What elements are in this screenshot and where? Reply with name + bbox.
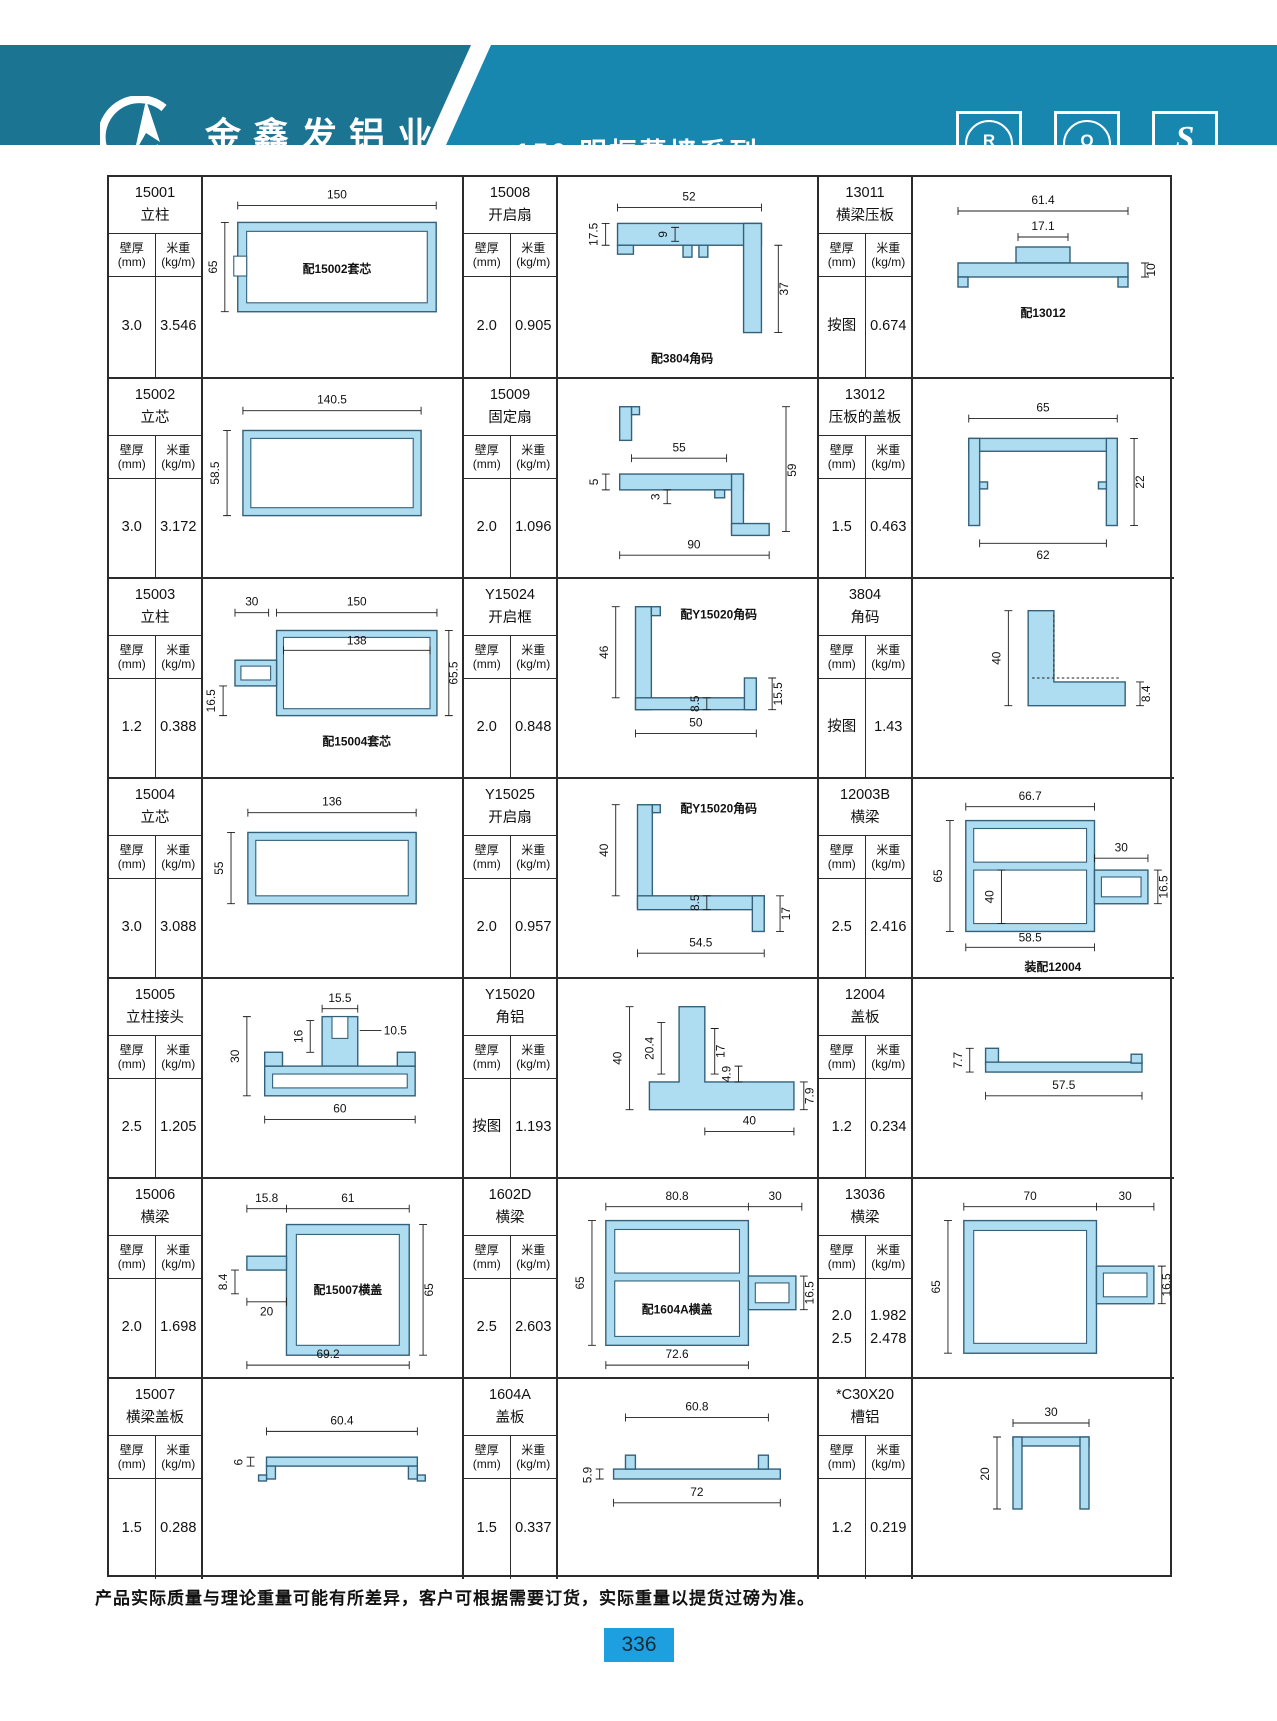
dim-label: 17	[714, 1045, 728, 1058]
dim-label: 4.9	[720, 1065, 734, 1082]
thickness-header: 壁厚 (mm)	[109, 1236, 156, 1278]
dim-label: 40	[743, 1114, 757, 1128]
weight-header: 米重 (kg/m)	[511, 1036, 557, 1078]
weight-header: 米重 (kg/m)	[866, 1036, 912, 1078]
dim-label: 90	[687, 537, 701, 551]
profile-drawing: 15.8 61 配15007横盖 65 8.4 20 69.2	[203, 1179, 462, 1377]
dim-label: 150	[327, 188, 347, 202]
dim-label: 20.4	[642, 1036, 656, 1060]
weight-value: 0.288	[156, 1479, 202, 1579]
dim-label: 30	[1119, 1189, 1133, 1203]
cqm-r-badge: R CQM	[956, 111, 1022, 177]
profile-name: 横梁	[496, 1206, 525, 1227]
dim-label: 65	[931, 869, 945, 883]
dim-label: 62	[1036, 548, 1049, 562]
weight-value: 0.234	[866, 1079, 912, 1177]
profile-cell-3804: 3804 角码 壁厚 (mm) 米重 (kg/m) 按图 1.43 40 8.4	[819, 579, 1174, 779]
spec-values: 1.2 0.219	[819, 1479, 911, 1579]
profile-code: Y15025	[485, 787, 535, 803]
dim-label: 15.5	[328, 991, 352, 1005]
profile-note: 配1604A横盖	[642, 1303, 713, 1317]
profile-code: 15004	[135, 787, 175, 803]
spec-header: 壁厚 (mm) 米重 (kg/m)	[819, 436, 911, 479]
dim-label: 9	[656, 231, 670, 238]
profile-drawing: 配Y15020角码 46 8.5 15.5 50	[558, 579, 817, 777]
spec-header: 壁厚 (mm) 米重 (kg/m)	[464, 234, 556, 277]
dim-label: 66.7	[1019, 789, 1042, 803]
dim-label: 58.5	[208, 461, 222, 485]
spec-header: 壁厚 (mm) 米重 (kg/m)	[109, 1036, 201, 1079]
profile-drawing: 60.8 5.9 72	[558, 1379, 817, 1579]
thickness-value: 2.0 2.5	[819, 1279, 866, 1377]
dim-label: 37	[777, 282, 791, 296]
dim-label: 72	[690, 1485, 704, 1499]
profile-cell-y15024: Y15024 开启框 壁厚 (mm) 米重 (kg/m) 2.0 0.848 配…	[464, 579, 819, 779]
weight-header: 米重 (kg/m)	[866, 1436, 912, 1478]
profile-cell-15002: 15002 立芯 壁厚 (mm) 米重 (kg/m) 3.0 3.172 140…	[109, 379, 464, 579]
weight-header: 米重 (kg/m)	[511, 1236, 557, 1278]
profile-cell-y15025: Y15025 开启扇 壁厚 (mm) 米重 (kg/m) 2.0 0.957 配…	[464, 779, 819, 979]
dim-label: 7.9	[803, 1087, 817, 1104]
weight-header: 米重 (kg/m)	[866, 1236, 912, 1278]
dim-label: 17.5	[587, 222, 601, 246]
profile-info: 13011 横梁压板 壁厚 (mm) 米重 (kg/m) 按图 0.674	[819, 177, 913, 377]
dim-label: 17.1	[1031, 219, 1055, 233]
profile-code: 15001	[135, 185, 175, 201]
weight-header: 米重 (kg/m)	[156, 636, 202, 678]
dim-label: 59	[785, 463, 799, 477]
thickness-value: 2.0	[464, 679, 511, 777]
spec-values: 1.2 0.388	[109, 679, 201, 777]
thickness-value: 3.0	[109, 277, 156, 377]
profile-name: 立柱接头	[126, 1006, 184, 1027]
profile-info: 15009 固定扇 壁厚 (mm) 米重 (kg/m) 2.0 1.096	[464, 379, 558, 577]
dim-label: 138	[347, 633, 367, 647]
profile-drawing: 52 17.5 9 37 配3804角码	[558, 177, 817, 377]
dim-label: 5.9	[581, 1466, 595, 1483]
weight-value: 0.674	[866, 277, 912, 377]
weight-header: 米重 (kg/m)	[866, 436, 912, 478]
profile-info: 15005 立柱接头 壁厚 (mm) 米重 (kg/m) 2.5 1.205	[109, 979, 203, 1177]
dim-label: 8.4	[216, 1273, 230, 1290]
profile-name: 固定扇	[488, 406, 532, 427]
weight-header: 米重 (kg/m)	[511, 436, 557, 478]
spec-header: 壁厚 (mm) 米重 (kg/m)	[819, 636, 911, 679]
profile-code: 13012	[845, 387, 885, 403]
thickness-header: 壁厚 (mm)	[464, 1036, 511, 1078]
spec-values: 3.0 3.172	[109, 479, 201, 577]
cqm-r-badge-icon: R CQM	[965, 120, 1013, 168]
thickness-value: 1.5	[819, 479, 866, 577]
weight-value: 3.172	[156, 479, 202, 577]
weight-header: 米重 (kg/m)	[156, 836, 202, 878]
thickness-value: 1.5	[109, 1479, 156, 1579]
weight-header: 米重 (kg/m)	[866, 836, 912, 878]
profile-info: *C30X20 槽铝 壁厚 (mm) 米重 (kg/m) 1.2 0.219	[819, 1379, 913, 1579]
profile-cell-15007: 15007 横梁盖板 壁厚 (mm) 米重 (kg/m) 1.5 0.288 6…	[109, 1379, 464, 1579]
dim-label: 30	[245, 595, 259, 609]
dim-label: 57.5	[1052, 1078, 1076, 1092]
profile-code: 15005	[135, 987, 175, 1003]
thickness-header: 壁厚 (mm)	[819, 436, 866, 478]
profile-id: 3804 角码	[819, 579, 911, 636]
profile-cell-c30x20: *C30X20 槽铝 壁厚 (mm) 米重 (kg/m) 1.2 0.219 3…	[819, 1379, 1174, 1579]
thickness-value: 2.0	[464, 879, 511, 977]
dim-label: 10	[1144, 263, 1158, 277]
profile-info: Y15025 开启扇 壁厚 (mm) 米重 (kg/m) 2.0 0.957	[464, 779, 558, 977]
dim-label: 150	[347, 595, 367, 609]
dim-label: 30	[769, 1189, 783, 1203]
spec-values: 2.0 1.698	[109, 1279, 201, 1377]
spec-header: 壁厚 (mm) 米重 (kg/m)	[464, 436, 556, 479]
thickness-value: 按图	[819, 277, 866, 377]
profile-info: 15001 立柱 壁厚 (mm) 米重 (kg/m) 3.0 3.546	[109, 177, 203, 377]
spec-values: 2.0 0.905	[464, 277, 556, 377]
page-number: 336	[604, 1628, 674, 1662]
dim-label: 60	[333, 1102, 347, 1116]
profile-drawing: 70 30 65 16.5	[913, 1179, 1174, 1377]
profile-info: Y15020 角铝 壁厚 (mm) 米重 (kg/m) 按图 1.193	[464, 979, 558, 1177]
thickness-header: 壁厚 (mm)	[109, 436, 156, 478]
dim-label: 52	[682, 190, 696, 204]
profile-cell-15003: 15003 立柱 壁厚 (mm) 米重 (kg/m) 1.2 0.388 30 …	[109, 579, 464, 779]
profile-drawing: 80.8 30 配1604A横盖 65 16.5 72.6	[558, 1179, 817, 1377]
dim-label: 136	[322, 795, 342, 809]
profile-code: 15009	[490, 387, 530, 403]
profile-id: 15009 固定扇	[464, 379, 556, 436]
spec-values: 3.0 3.088	[109, 879, 201, 977]
thickness-header: 壁厚 (mm)	[109, 234, 156, 276]
spec-values: 3.0 3.546	[109, 277, 201, 377]
profile-info: 15006 横梁 壁厚 (mm) 米重 (kg/m) 2.0 1.698	[109, 1179, 203, 1377]
spec-values: 1.5 0.288	[109, 1479, 201, 1579]
profile-name: 横梁压板	[836, 204, 894, 225]
profile-name: 立芯	[141, 406, 170, 427]
weight-header: 米重 (kg/m)	[156, 234, 202, 276]
profile-code: 15002	[135, 387, 175, 403]
spec-header: 壁厚 (mm) 米重 (kg/m)	[464, 1036, 556, 1079]
dim-label: 61.4	[1031, 193, 1055, 207]
weight-value: 0.337	[511, 1479, 557, 1579]
dim-label: 15.8	[255, 1191, 279, 1205]
weight-header: 米重 (kg/m)	[866, 234, 912, 276]
spec-header: 壁厚 (mm) 米重 (kg/m)	[109, 836, 201, 879]
profile-drawing: 136 55	[203, 779, 462, 977]
profile-note: 配Y15020角码	[680, 802, 757, 816]
profile-cell-13012: 13012 压板的盖板 壁厚 (mm) 米重 (kg/m) 1.5 0.463 …	[819, 379, 1174, 579]
spec-values: 按图 1.193	[464, 1079, 556, 1177]
thickness-header: 壁厚 (mm)	[464, 234, 511, 276]
profile-id: Y15020 角铝	[464, 979, 556, 1036]
profile-name: 横梁	[141, 1206, 170, 1227]
spec-header: 壁厚 (mm) 米重 (kg/m)	[819, 234, 911, 277]
profile-code: 3804	[849, 587, 881, 603]
spec-header: 壁厚 (mm) 米重 (kg/m)	[464, 1436, 556, 1479]
profile-drawing: 15.5 16 10.5 30 60	[203, 979, 462, 1177]
profile-drawing: 61.4 17.1 10 配13012	[913, 177, 1174, 377]
profile-id: 15005 立柱接头	[109, 979, 201, 1036]
profile-note: 配15007横盖	[314, 1283, 383, 1297]
profile-id: 1604A 盖板	[464, 1379, 556, 1436]
dim-label: 8.4	[1139, 685, 1153, 702]
cqm-q-badge: Q CQM	[1054, 111, 1120, 177]
badge-caption: 生产许可	[1168, 158, 1202, 169]
weight-header: 米重 (kg/m)	[866, 636, 912, 678]
profile-drawing: 65 62 22	[913, 379, 1174, 577]
spec-header: 壁厚 (mm) 米重 (kg/m)	[109, 1436, 201, 1479]
weight-value: 1.698	[156, 1279, 202, 1377]
profile-info: 1604A 盖板 壁厚 (mm) 米重 (kg/m) 1.5 0.337	[464, 1379, 558, 1579]
profile-cell-15008: 15008 开启扇 壁厚 (mm) 米重 (kg/m) 2.0 0.905 52	[464, 177, 819, 379]
dim-label: 16.5	[204, 689, 218, 713]
profile-cell-13036: 13036 横梁 壁厚 (mm) 米重 (kg/m) 2.0 2.5 1.982…	[819, 1179, 1174, 1379]
thickness-header: 壁厚 (mm)	[819, 1436, 866, 1478]
weight-header: 米重 (kg/m)	[511, 836, 557, 878]
profile-id: Y15025 开启扇	[464, 779, 556, 836]
profile-drawing: 60.4 6	[203, 1379, 462, 1579]
profile-cell-15005: 15005 立柱接头 壁厚 (mm) 米重 (kg/m) 2.5 1.205 1…	[109, 979, 464, 1179]
weight-value: 0.463	[866, 479, 912, 577]
thickness-header: 壁厚 (mm)	[109, 1436, 156, 1478]
profile-id: 13012 压板的盖板	[819, 379, 911, 436]
cqm-q-badge-icon: Q CQM	[1063, 120, 1111, 168]
dim-label: 16.5	[1160, 1273, 1174, 1297]
profile-info: 15004 立芯 壁厚 (mm) 米重 (kg/m) 3.0 3.088	[109, 779, 203, 977]
thickness-value: 2.0	[464, 479, 511, 577]
dim-label: 58.5	[1019, 930, 1043, 944]
profile-info: 15002 立芯 壁厚 (mm) 米重 (kg/m) 3.0 3.172	[109, 379, 203, 577]
thickness-value: 2.5	[819, 879, 866, 977]
weight-header: 米重 (kg/m)	[511, 234, 557, 276]
profile-id: 15007 横梁盖板	[109, 1379, 201, 1436]
profile-id: *C30X20 槽铝	[819, 1379, 911, 1436]
profile-drawing: 150 65 配15002套芯	[203, 177, 462, 377]
dim-label: 22	[1133, 475, 1147, 488]
dim-label: 54.5	[689, 935, 713, 949]
profile-code: 13011	[845, 185, 884, 201]
thickness-header: 壁厚 (mm)	[819, 1036, 866, 1078]
profile-id: 12004 盖板	[819, 979, 911, 1036]
profile-name: 横梁	[851, 806, 880, 827]
badge-symbol: S	[1176, 120, 1195, 158]
weight-value: 2.603	[511, 1279, 557, 1377]
dim-label: 40	[597, 843, 611, 857]
thickness-value: 3.0	[109, 879, 156, 977]
profile-drawing: 55 5 3 59 90	[558, 379, 817, 577]
profile-name: 角码	[851, 606, 880, 627]
profile-cell-15004: 15004 立芯 壁厚 (mm) 米重 (kg/m) 3.0 3.088 136…	[109, 779, 464, 979]
dim-label: 5	[587, 478, 601, 485]
spec-header: 壁厚 (mm) 米重 (kg/m)	[464, 636, 556, 679]
thickness-value: 1.2	[819, 1479, 866, 1579]
profile-cell-15009: 15009 固定扇 壁厚 (mm) 米重 (kg/m) 2.0 1.096	[464, 379, 819, 579]
weight-value: 1.193	[511, 1079, 557, 1177]
spec-header: 壁厚 (mm) 米重 (kg/m)	[109, 234, 201, 277]
dim-label: 55	[672, 440, 686, 454]
weight-header: 米重 (kg/m)	[511, 1436, 557, 1478]
dim-label: 3	[648, 493, 662, 500]
spec-values: 2.0 0.848	[464, 679, 556, 777]
profile-cell-13011: 13011 横梁压板 壁厚 (mm) 米重 (kg/m) 按图 0.674 61…	[819, 177, 1174, 379]
thickness-header: 壁厚 (mm)	[109, 636, 156, 678]
profile-code: Y15024	[485, 587, 535, 603]
thickness-header: 壁厚 (mm)	[819, 234, 866, 276]
profile-cell-12004: 12004 盖板 壁厚 (mm) 米重 (kg/m) 1.2 0.234 7.7…	[819, 979, 1174, 1179]
profile-code: 12004	[845, 987, 885, 1003]
profile-name: 立芯	[141, 806, 170, 827]
spec-values: 1.2 0.234	[819, 1079, 911, 1177]
profile-drawing: 7.7 57.5	[913, 979, 1174, 1177]
profile-info: Y15024 开启框 壁厚 (mm) 米重 (kg/m) 2.0 0.848	[464, 579, 558, 777]
dim-label: 46	[597, 645, 611, 659]
spec-values: 2.5 2.603	[464, 1279, 556, 1377]
thickness-header: 壁厚 (mm)	[464, 1236, 511, 1278]
dim-label: 140.5	[317, 393, 347, 407]
profile-id: 15002 立芯	[109, 379, 201, 436]
profile-drawing: 66.7 30 65 40 16.5 58.5 装配12004	[913, 779, 1174, 977]
spec-values: 2.0 2.5 1.982 2.478	[819, 1279, 911, 1377]
profile-cell-15001: 15001 立柱 壁厚 (mm) 米重 (kg/m) 3.0 3.546 150…	[109, 177, 464, 379]
spec-header: 壁厚 (mm) 米重 (kg/m)	[109, 636, 201, 679]
thickness-header: 壁厚 (mm)	[819, 636, 866, 678]
profile-id: 13036 横梁	[819, 1179, 911, 1236]
profile-drawing: 30 150 138 65.5 16.5 配15004套芯	[203, 579, 462, 777]
profile-info: 12004 盖板 壁厚 (mm) 米重 (kg/m) 1.2 0.234	[819, 979, 913, 1177]
thickness-value: 2.5	[109, 1079, 156, 1177]
dim-label: 16	[291, 1029, 305, 1043]
weight-header: 米重 (kg/m)	[511, 636, 557, 678]
profile-note: 配13012	[1020, 305, 1066, 320]
profile-id: 15008 开启扇	[464, 177, 556, 234]
profile-id: 13011 横梁压板	[819, 177, 911, 234]
dim-label: 40	[983, 890, 997, 904]
series-title-text: 150 明框幕墙系列	[515, 138, 760, 168]
dim-label: 7.7	[951, 1052, 965, 1069]
weight-value: 3.546	[156, 277, 202, 377]
profile-code: 13036	[845, 1187, 885, 1203]
dim-label: 8.5	[688, 894, 702, 911]
profile-note: 装配12004	[1024, 960, 1082, 974]
weight-value: 0.848	[511, 679, 557, 777]
dim-label: 61	[341, 1191, 355, 1205]
profile-note: 配3804角码	[651, 351, 713, 365]
company-name-en: JINXINFA ALUMINUM	[206, 151, 404, 171]
thickness-value: 3.0	[109, 479, 156, 577]
dim-label: 30	[228, 1049, 242, 1063]
spec-header: 壁厚 (mm) 米重 (kg/m)	[464, 836, 556, 879]
profile-table: 15001 立柱 壁厚 (mm) 米重 (kg/m) 3.0 3.546 150…	[107, 175, 1172, 1577]
dim-label: 60.4	[330, 1413, 354, 1427]
thickness-value: 2.0	[109, 1279, 156, 1377]
weight-value: 3.088	[156, 879, 202, 977]
profile-name: 横梁盖板	[126, 1406, 184, 1427]
profile-drawing: 40 8.4	[913, 579, 1174, 777]
spec-header: 壁厚 (mm) 米重 (kg/m)	[109, 436, 201, 479]
profile-name: 立柱	[141, 204, 170, 225]
thickness-header: 壁厚 (mm)	[109, 836, 156, 878]
profile-code: 15006	[135, 1187, 175, 1203]
profile-id: 15001 立柱	[109, 177, 201, 234]
weight-value: 0.219	[866, 1479, 912, 1579]
profile-name: 开启扇	[488, 806, 532, 827]
dim-label: 16.5	[803, 1281, 817, 1305]
profile-code: 1604A	[489, 1387, 531, 1403]
profile-name: 盖板	[851, 1006, 880, 1027]
weight-header: 米重 (kg/m)	[156, 1236, 202, 1278]
weight-value: 1.096	[511, 479, 557, 577]
thickness-value: 按图	[464, 1079, 511, 1177]
profile-cell-1604a: 1604A 盖板 壁厚 (mm) 米重 (kg/m) 1.5 0.337 60.…	[464, 1379, 819, 1579]
dim-label: 8.5	[688, 695, 702, 712]
badge-caption: CQM	[1077, 149, 1097, 157]
dim-label: 6	[232, 1458, 246, 1465]
thickness-header: 壁厚 (mm)	[464, 636, 511, 678]
profile-code: 15003	[135, 587, 175, 603]
dim-label: 69.2	[316, 1347, 339, 1361]
disclaimer-note: 产品实际质量与理论重量可能有所差异，客户可根据需要订货，实际重量以提货过磅为准。	[95, 1584, 815, 1609]
dim-label: 80.8	[666, 1189, 690, 1203]
dim-label: 72.6	[666, 1347, 690, 1361]
profile-info: 13036 横梁 壁厚 (mm) 米重 (kg/m) 2.0 2.5 1.982…	[819, 1179, 913, 1377]
thickness-value: 2.5	[464, 1279, 511, 1377]
company-logo-icon	[100, 96, 188, 184]
dim-label: 65	[206, 260, 220, 274]
dim-label: 10.5	[384, 1023, 408, 1037]
profile-id: 1602D 横梁	[464, 1179, 556, 1236]
profile-info: 1602D 横梁 壁厚 (mm) 米重 (kg/m) 2.5 2.603	[464, 1179, 558, 1377]
profile-cell-y15020: Y15020 角铝 壁厚 (mm) 米重 (kg/m) 按图 1.193 40 …	[464, 979, 819, 1179]
profile-code: *C30X20	[836, 1387, 894, 1403]
thickness-header: 壁厚 (mm)	[109, 1036, 156, 1078]
profile-name: 立柱	[141, 606, 170, 627]
profile-id: Y15024 开启框	[464, 579, 556, 636]
spec-header: 壁厚 (mm) 米重 (kg/m)	[109, 1236, 201, 1279]
profile-code: 12003B	[840, 787, 890, 803]
profile-id: 15003 立柱	[109, 579, 201, 636]
badge-caption: CQM	[979, 149, 999, 157]
series-title: 150 明框幕墙系列↘	[515, 131, 799, 170]
dim-label: 16.5	[1157, 875, 1171, 899]
weight-value: 0.957	[511, 879, 557, 977]
profile-cell-15006: 15006 横梁 壁厚 (mm) 米重 (kg/m) 2.0 1.698 15.…	[109, 1179, 464, 1379]
profile-name: 压板的盖板	[829, 406, 902, 427]
dim-label: 20	[978, 1467, 992, 1481]
profile-id: 15004 立芯	[109, 779, 201, 836]
dim-label: 65	[573, 1276, 587, 1290]
spec-values: 1.5 0.337	[464, 1479, 556, 1579]
profile-code: 15008	[490, 185, 530, 201]
profile-id: 12003B 横梁	[819, 779, 911, 836]
dim-label: 65	[422, 1283, 436, 1297]
spec-values: 按图 1.43	[819, 679, 911, 777]
profile-name: 开启框	[488, 606, 532, 627]
thickness-value: 1.2	[819, 1079, 866, 1177]
dim-label: 65	[1036, 401, 1050, 415]
profile-note: 配15002套芯	[303, 262, 372, 276]
profile-code: Y15020	[485, 987, 535, 1003]
qs-license-badge: S 生产许可	[1152, 111, 1218, 177]
arrow-icon: ↘	[776, 148, 799, 177]
profile-drawing: 40 20.4 17 4.9 7.9 40	[558, 979, 817, 1177]
weight-header: 米重 (kg/m)	[156, 1036, 202, 1078]
thickness-header: 壁厚 (mm)	[819, 836, 866, 878]
profile-note: 配Y15020角码	[680, 608, 757, 622]
weight-value: 1.205	[156, 1079, 202, 1177]
badge-symbol: Q	[1080, 132, 1093, 149]
certification-badges: R CQM Q CQM S 生产许可	[956, 111, 1218, 177]
thickness-header: 壁厚 (mm)	[464, 436, 511, 478]
profile-info: 13012 压板的盖板 壁厚 (mm) 米重 (kg/m) 1.5 0.463	[819, 379, 913, 577]
